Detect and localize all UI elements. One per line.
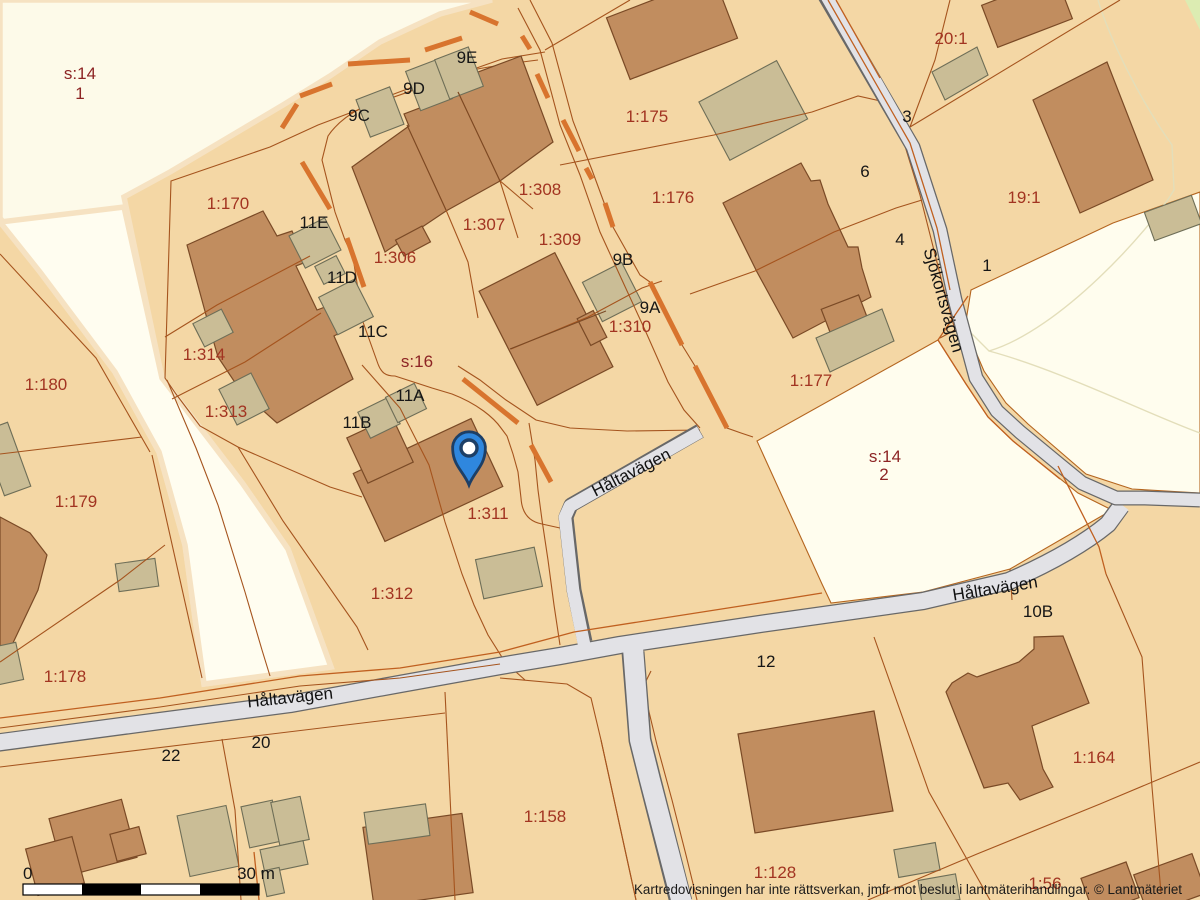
svg-text:9D: 9D <box>403 79 425 98</box>
svg-text:11B: 11B <box>343 413 372 432</box>
svg-text:10B: 10B <box>1023 602 1053 621</box>
svg-text:30 m: 30 m <box>237 864 275 883</box>
svg-text:1:164: 1:164 <box>1073 748 1116 767</box>
svg-text:9B: 9B <box>613 250 634 269</box>
svg-text:1:306: 1:306 <box>374 248 417 267</box>
svg-text:1:178: 1:178 <box>44 667 87 686</box>
svg-text:9E: 9E <box>457 48 478 67</box>
svg-text:1:310: 1:310 <box>609 317 652 336</box>
svg-text:1:308: 1:308 <box>519 180 562 199</box>
svg-text:9C: 9C <box>348 106 370 125</box>
svg-text:s:14: s:14 <box>64 64 96 83</box>
svg-text:1:158: 1:158 <box>524 807 567 826</box>
svg-text:1:170: 1:170 <box>207 194 250 213</box>
svg-text:1: 1 <box>75 84 84 103</box>
svg-text:1:307: 1:307 <box>463 215 506 234</box>
svg-text:1: 1 <box>982 256 991 275</box>
svg-text:20:1: 20:1 <box>934 29 967 48</box>
svg-text:1:180: 1:180 <box>25 375 68 394</box>
svg-text:1:128: 1:128 <box>754 863 797 882</box>
svg-text:11A: 11A <box>396 386 426 405</box>
svg-text:1:313: 1:313 <box>205 402 248 421</box>
svg-text:1:309: 1:309 <box>539 230 582 249</box>
svg-text:1:177: 1:177 <box>790 371 833 390</box>
svg-text:11D: 11D <box>327 268 357 287</box>
svg-text:20: 20 <box>252 733 271 752</box>
svg-text:s:14: s:14 <box>869 447 901 466</box>
svg-text:Kartredovisningen har inte rät: Kartredovisningen har inte rättsverkan, … <box>634 882 1182 897</box>
svg-text:4: 4 <box>895 230 904 249</box>
svg-text:1:314: 1:314 <box>183 345 226 364</box>
svg-text:9A: 9A <box>640 298 661 317</box>
svg-text:19:1: 19:1 <box>1007 188 1040 207</box>
svg-text:2: 2 <box>879 465 888 484</box>
svg-text:0: 0 <box>23 864 32 883</box>
svg-text:1:311: 1:311 <box>467 504 508 523</box>
svg-text:1:179: 1:179 <box>55 492 98 511</box>
svg-text:11E: 11E <box>300 213 329 232</box>
svg-text:11C: 11C <box>358 322 388 341</box>
svg-text:s:16: s:16 <box>401 352 433 371</box>
svg-text:1:175: 1:175 <box>626 107 669 126</box>
svg-text:1:176: 1:176 <box>652 188 695 207</box>
svg-text:3: 3 <box>902 107 911 126</box>
svg-text:12: 12 <box>757 652 776 671</box>
svg-text:6: 6 <box>860 162 869 181</box>
svg-text:1:312: 1:312 <box>371 584 414 603</box>
svg-text:22: 22 <box>162 746 181 765</box>
